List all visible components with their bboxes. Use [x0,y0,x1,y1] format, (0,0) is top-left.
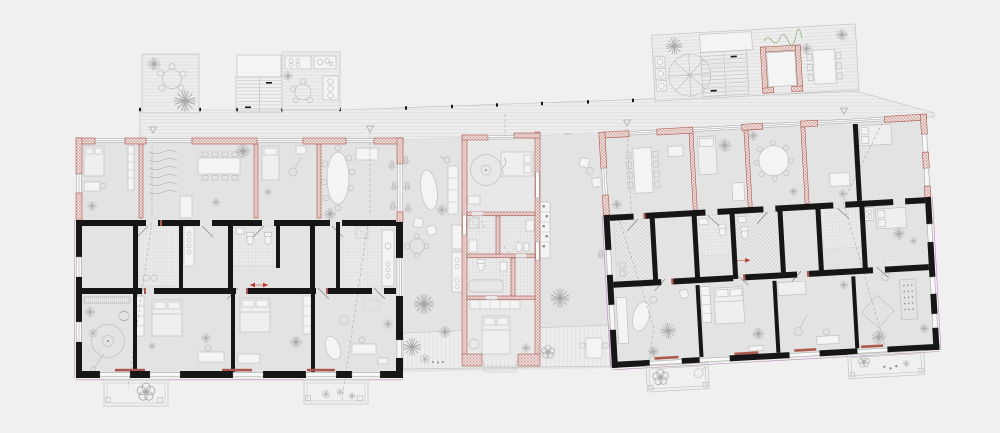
core-bathrooms [467,216,535,306]
stair-landing [237,55,281,77]
toilet-icon [719,224,727,236]
bench [749,346,763,352]
toilet-icon [265,233,272,245]
core-wall [462,135,467,358]
balcony [104,380,168,406]
desk [817,335,839,344]
sink [500,262,507,271]
dining-table [198,158,240,174]
toilet-icon [247,233,254,245]
right-apartment-block [592,20,942,394]
armchair [591,177,601,187]
plant-icon [858,356,870,367]
cabinet [829,172,850,186]
watering-can-icon [694,368,703,377]
roof-terrace-right [651,24,858,101]
central-core [462,132,540,372]
plant-icon [85,307,96,318]
shelf [128,146,134,190]
plant-icon [652,369,668,385]
sink [699,218,708,224]
plant-icon [337,389,344,395]
sideboard [180,196,192,218]
desk [668,146,684,157]
sink [738,216,746,222]
staircase-left [236,77,283,112]
balcony [848,351,925,379]
armchair [426,225,437,236]
bathroom-tiles [820,207,861,249]
plant-icon [550,288,569,307]
toilet-icon [478,260,485,271]
balcony [646,363,709,392]
desk [238,354,260,363]
wardrobe [303,296,311,334]
plant-icon [137,383,155,400]
sofa-bed [777,281,806,296]
floor-plan-canvas [0,0,1000,433]
cabinet [469,240,477,252]
wardrobe [470,300,520,309]
outdoor-counter [452,225,462,249]
plant-icon [236,144,250,158]
armchair [679,289,689,299]
plant-icon [521,343,531,353]
floor-plan-drawing [0,0,1000,433]
amp [296,146,306,154]
plant-icon [437,205,448,216]
sofa [616,297,629,343]
dining-table [633,147,653,193]
kitchen-counter [382,230,394,286]
plant-icon [403,338,421,356]
desk [352,344,376,354]
planters [655,57,667,92]
stair-landing [700,32,753,53]
sink [236,228,244,234]
balcony [304,380,368,404]
plant-icon [201,333,211,343]
roof-terrace-left [142,52,340,113]
bench [84,297,130,303]
armchair [413,217,423,227]
plant-icon [902,360,910,368]
desk [84,182,100,191]
plant-icon [283,71,293,81]
desk [198,352,224,362]
shelf [468,196,480,204]
plant-icon [348,392,355,399]
oval-table [327,152,349,204]
plant-icon [322,390,330,397]
bookshelf [540,202,550,258]
plant-icon [383,319,393,329]
sink [526,220,534,231]
exterior-wall-left [75,138,82,378]
bathroom-tiles [139,226,179,286]
armchair [579,157,590,168]
toy [378,358,388,364]
left-apartment-block [75,132,403,406]
toilet-icon [741,227,749,239]
cabinet [732,182,745,201]
cabinet [356,148,378,160]
